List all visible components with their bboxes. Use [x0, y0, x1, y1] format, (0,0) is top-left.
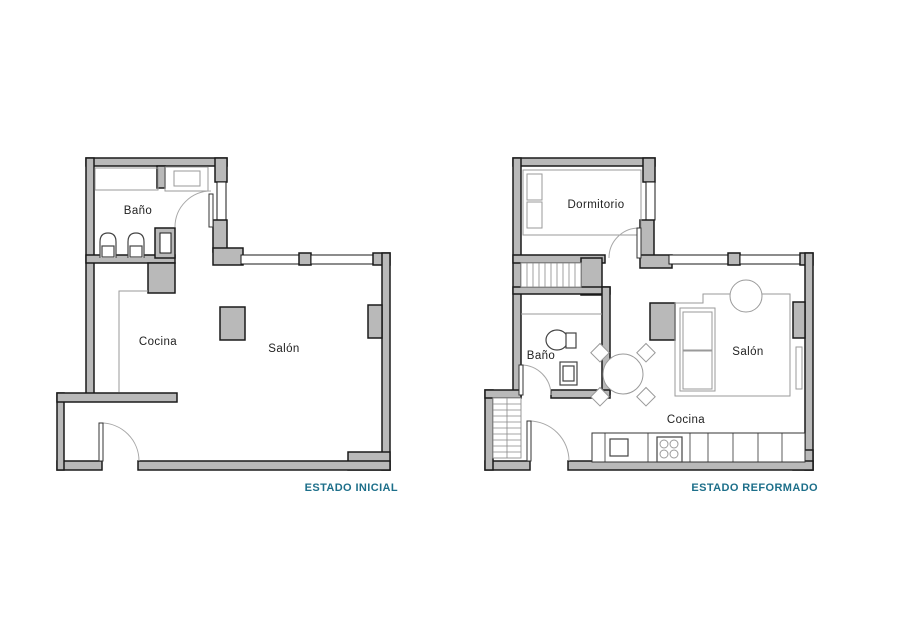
bathroom-door-leaf	[519, 365, 523, 395]
bedroom-door-leaf	[637, 228, 641, 258]
hob	[657, 437, 682, 462]
wall	[640, 255, 672, 268]
door-leaf	[209, 194, 213, 227]
wall	[513, 158, 521, 398]
reformed-plan-drawing	[485, 158, 813, 470]
bathtub	[95, 168, 158, 190]
toilet-fixture	[546, 330, 568, 350]
floor-plan-comparison: Baño Cocina Salón Dormitorio Baño Salón …	[0, 0, 900, 636]
room-label-salon-initial: Salón	[259, 343, 309, 355]
window	[217, 182, 226, 220]
wall	[213, 248, 243, 265]
window	[669, 255, 728, 264]
wall	[215, 158, 227, 182]
sink-basin	[563, 366, 574, 381]
window-mullion	[299, 253, 311, 265]
wall	[513, 287, 610, 294]
wall-chunk	[148, 263, 175, 293]
pilaster	[793, 302, 805, 338]
room-label-salon-reformed: Salón	[723, 346, 773, 358]
pillow	[527, 174, 542, 200]
pilaster	[368, 305, 382, 338]
wall	[640, 220, 654, 258]
wall	[485, 390, 521, 398]
wall	[57, 393, 177, 402]
radiator	[796, 347, 802, 389]
room-label-cocina-reformed: Cocina	[656, 414, 716, 426]
toilet-fixture-base	[102, 246, 114, 257]
caption-estado-inicial: ESTADO INICIAL	[268, 482, 398, 494]
bathroom-door-arc	[521, 365, 551, 395]
door-arc	[175, 191, 211, 227]
caption-estado-reformado: ESTADO REFORMADO	[688, 482, 818, 494]
floor-plans-drawing	[0, 0, 900, 636]
entry-door-arc	[529, 421, 569, 461]
column	[650, 303, 675, 340]
wall	[382, 253, 390, 470]
bedroom-door-arc	[609, 228, 639, 258]
wall	[513, 158, 655, 166]
window-mullion	[728, 253, 740, 265]
chair	[637, 388, 655, 406]
bidet-fixture-base	[130, 246, 142, 257]
niche	[160, 233, 171, 253]
toilet-tank	[566, 333, 576, 348]
wall	[57, 393, 64, 470]
window	[241, 255, 299, 264]
wall	[86, 158, 94, 398]
kitchen-sink	[610, 439, 628, 456]
wall	[138, 461, 390, 470]
column	[220, 307, 245, 340]
wall	[805, 253, 813, 470]
wall	[643, 158, 655, 182]
room-label-dormitorio-reformed: Dormitorio	[556, 199, 636, 211]
wall	[485, 390, 493, 470]
chair	[637, 344, 655, 362]
window	[311, 255, 373, 264]
hall-cabinet-inner	[174, 171, 200, 186]
initial-plan-drawing	[57, 158, 390, 470]
pillow	[527, 202, 542, 228]
dining-table	[603, 354, 643, 394]
entry-door-leaf	[99, 423, 103, 461]
window	[740, 255, 800, 264]
wall	[86, 158, 227, 166]
entry-door-arc	[101, 423, 139, 461]
room-label-bano-reformed: Baño	[516, 350, 566, 362]
room-label-cocina-initial: Cocina	[128, 336, 188, 348]
wall	[213, 220, 227, 252]
room-label-bano-initial: Baño	[113, 205, 163, 217]
dining-set	[591, 344, 655, 406]
entry-door-leaf	[527, 421, 531, 461]
window	[646, 182, 655, 220]
side-table	[730, 280, 762, 312]
